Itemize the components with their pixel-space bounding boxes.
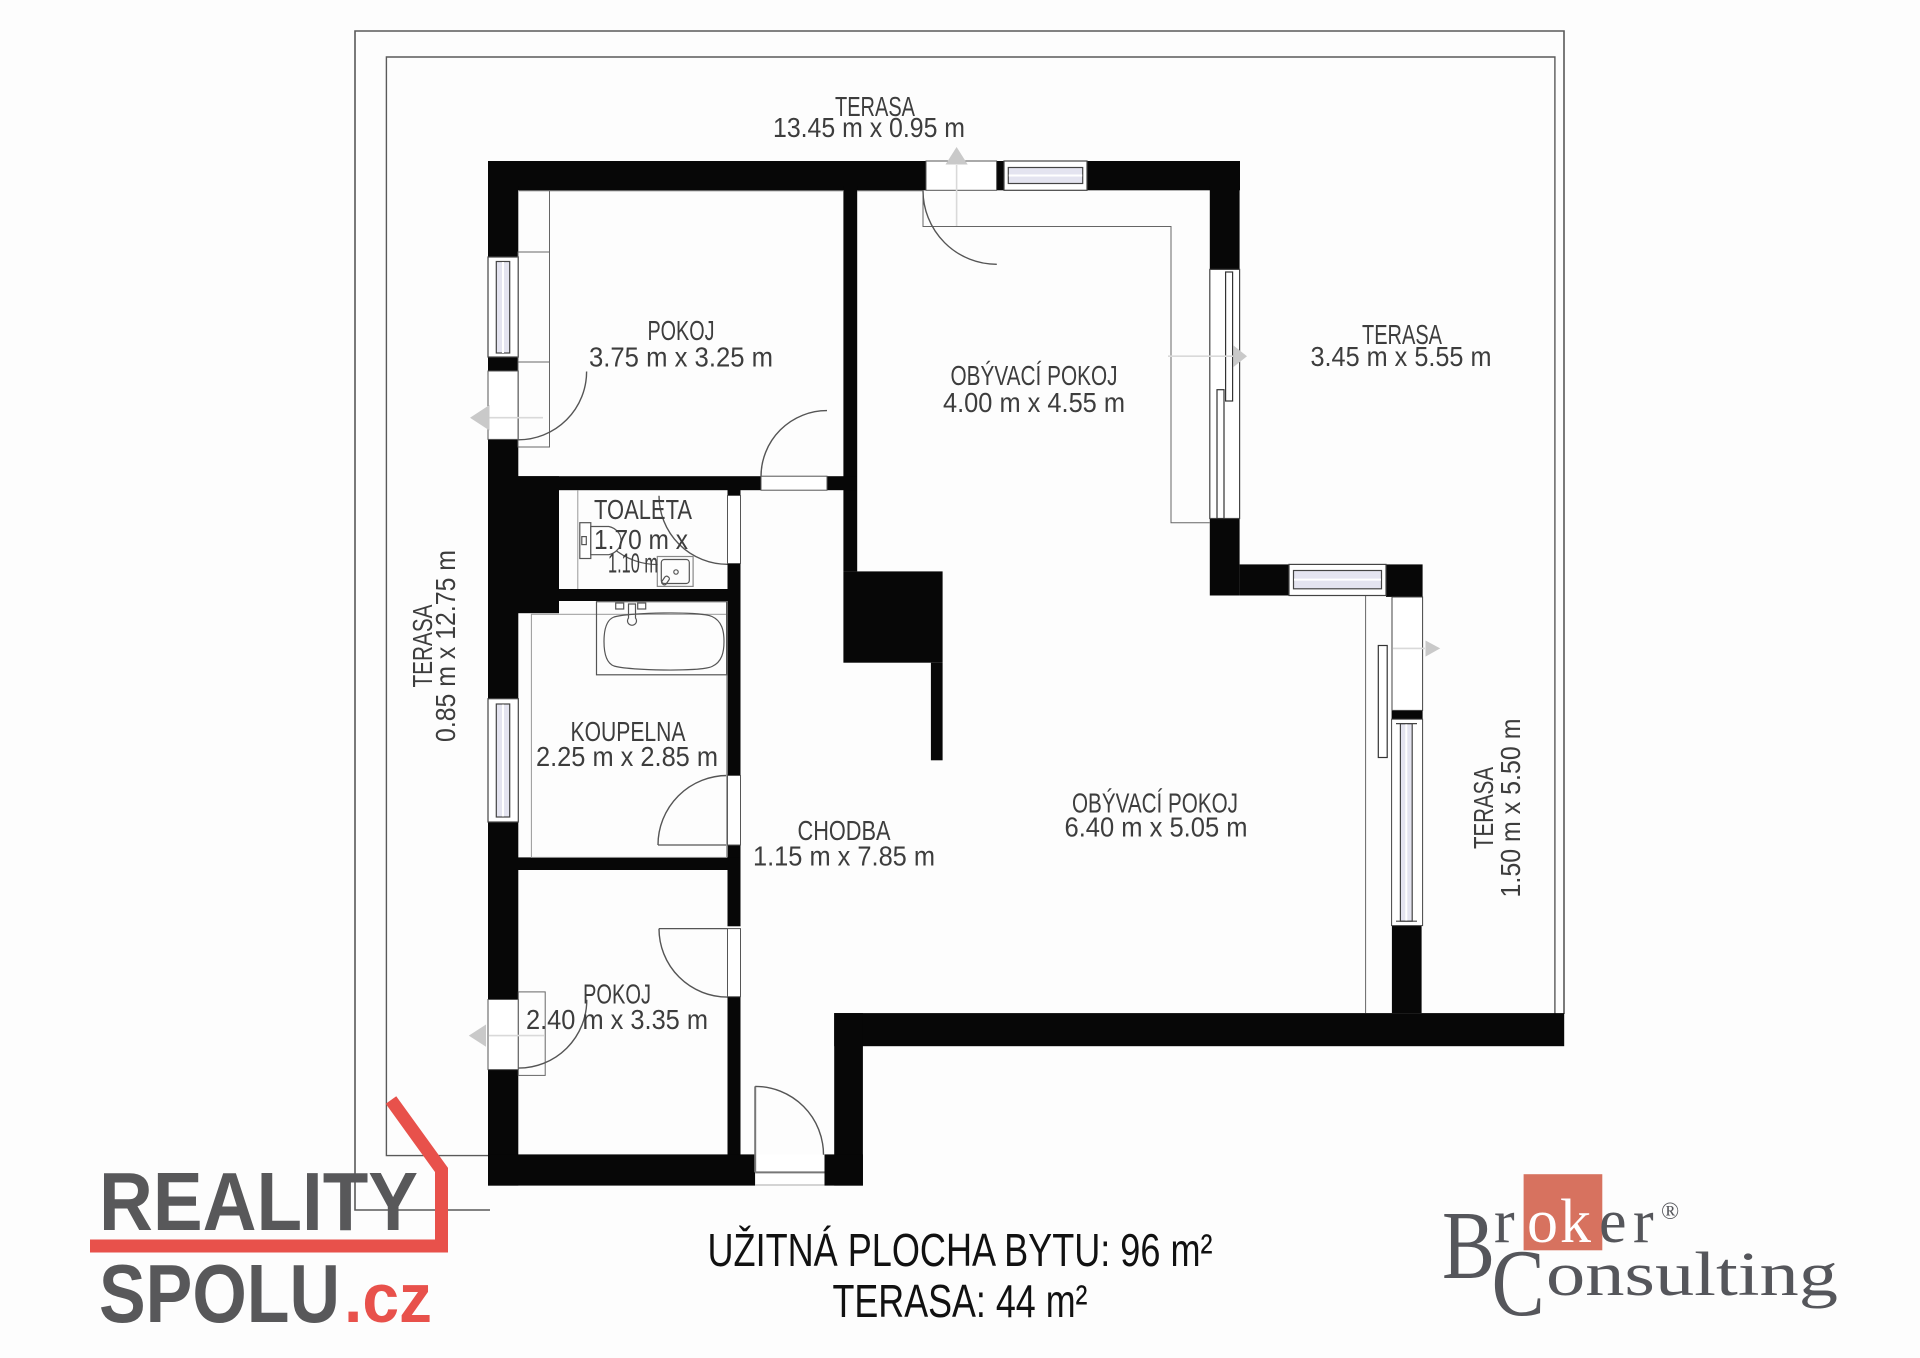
- svg-text:TERASA: 44 m²: TERASA: 44 m²: [833, 1275, 1088, 1327]
- svg-text:UŽITNÁ PLOCHA BYTU: 96 m²: UŽITNÁ PLOCHA BYTU: 96 m²: [708, 1224, 1213, 1276]
- svg-text:3.75 m x 3.25 m: 3.75 m x 3.25 m: [589, 342, 773, 373]
- svg-text:1.50 m x 5.50 m: 1.50 m x 5.50 m: [1495, 719, 1526, 898]
- svg-text:2.25 m x 2.85 m: 2.25 m x 2.85 m: [536, 741, 718, 772]
- svg-text:3.45 m x 5.55 m: 3.45 m x 5.55 m: [1311, 341, 1492, 372]
- svg-text:®: ®: [1661, 1199, 1679, 1225]
- svg-text:SPOLU: SPOLU: [99, 1247, 340, 1340]
- svg-text:.cz: .cz: [344, 1259, 432, 1337]
- svg-text:1.15 m x 7.85 m: 1.15 m x 7.85 m: [753, 840, 935, 871]
- svg-text:0.85 m x 12.75 m: 0.85 m x 12.75 m: [430, 550, 461, 742]
- svg-text:onsulting: onsulting: [1546, 1241, 1838, 1309]
- svg-text:B: B: [1442, 1192, 1495, 1299]
- svg-text:13.45 m x 0.95 m: 13.45 m x 0.95 m: [773, 112, 965, 143]
- svg-text:6.40 m x 5.05 m: 6.40 m x 5.05 m: [1065, 812, 1248, 843]
- svg-text:TOALETA: TOALETA: [594, 494, 692, 525]
- svg-text:4.00 m x 4.55 m: 4.00 m x 4.55 m: [943, 387, 1125, 418]
- svg-text:1.10 m: 1.10 m: [608, 548, 658, 579]
- svg-text:2.40 m x 3.35 m: 2.40 m x 3.35 m: [526, 1004, 708, 1035]
- svg-text:REALITY: REALITY: [99, 1155, 418, 1248]
- svg-text:C: C: [1492, 1230, 1545, 1336]
